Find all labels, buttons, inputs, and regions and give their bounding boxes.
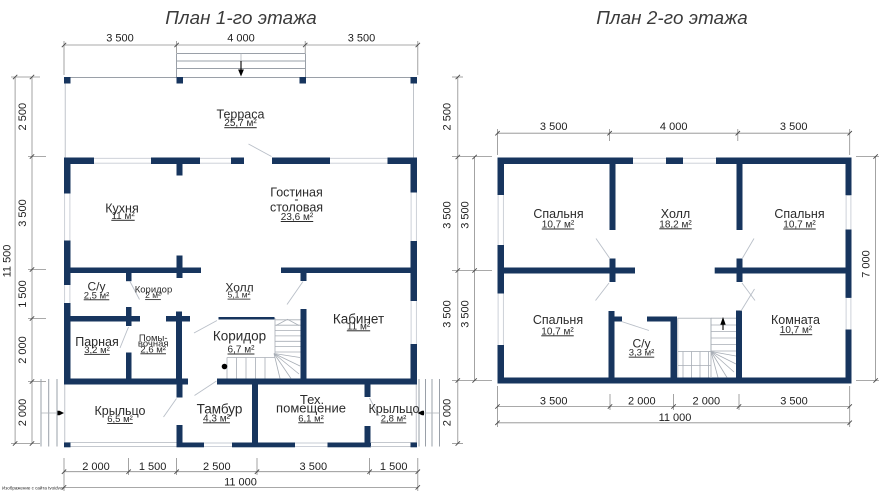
svg-text:2 000: 2 000 [693, 396, 721, 408]
svg-text:2,5 м²: 2,5 м² [84, 290, 110, 301]
svg-text:2 000: 2 000 [82, 461, 110, 473]
svg-text:2 500: 2 500 [17, 103, 29, 131]
svg-text:2 000: 2 000 [442, 399, 454, 427]
svg-text:3,3 м²: 3,3 м² [629, 348, 655, 359]
svg-text:6,5 м²: 6,5 м² [107, 414, 133, 425]
svg-text:11 500: 11 500 [2, 245, 14, 278]
svg-text:3 500: 3 500 [540, 396, 568, 408]
svg-text:2 500: 2 500 [442, 103, 454, 131]
svg-text:18,2 м²: 18,2 м² [659, 219, 692, 230]
svg-text:1 500: 1 500 [380, 461, 408, 473]
svg-text:10,7 м²: 10,7 м² [780, 325, 813, 336]
svg-text:1 500: 1 500 [139, 461, 167, 473]
svg-text:2 м²: 2 м² [145, 290, 161, 300]
svg-text:3 500: 3 500 [300, 461, 328, 473]
svg-text:4,3 м²: 4,3 м² [203, 413, 231, 424]
svg-text:3 500: 3 500 [459, 201, 471, 229]
svg-text:7 000: 7 000 [860, 250, 872, 278]
svg-text:Изображение с сайта tvoidvor: Изображение с сайта tvoidvor [2, 485, 64, 491]
svg-text:Коридор: Коридор [213, 329, 266, 344]
svg-text:2 000: 2 000 [17, 336, 29, 364]
svg-text:Спальня: Спальня [533, 313, 583, 327]
svg-text:2 500: 2 500 [203, 461, 231, 473]
svg-text:2,6 м²: 2,6 м² [140, 344, 166, 355]
svg-text:10,7 м²: 10,7 м² [783, 220, 816, 231]
svg-text:23,6 м²: 23,6 м² [281, 212, 314, 223]
svg-text:3 500: 3 500 [348, 33, 376, 45]
svg-text:6,7 м²: 6,7 м² [228, 345, 256, 356]
svg-text:11 м²: 11 м² [347, 321, 371, 332]
svg-text:4 000: 4 000 [660, 121, 688, 133]
svg-text:11 м²: 11 м² [111, 211, 135, 222]
svg-text:3 500: 3 500 [459, 300, 471, 328]
svg-text:3 500: 3 500 [106, 33, 134, 45]
svg-text:6,1 м²: 6,1 м² [298, 413, 324, 424]
svg-text:4 000: 4 000 [227, 33, 255, 45]
svg-text:2 000: 2 000 [17, 399, 29, 427]
svg-text:План 2-го этажа: План 2-го этажа [596, 7, 748, 28]
svg-text:3 500: 3 500 [442, 201, 454, 229]
svg-text:10,7 м²: 10,7 м² [542, 220, 575, 231]
svg-text:11 000: 11 000 [659, 412, 692, 424]
svg-text:10,7 м²: 10,7 м² [541, 326, 574, 337]
svg-text:План 1-го этажа: План 1-го этажа [165, 7, 317, 28]
svg-text:3 500: 3 500 [17, 199, 29, 227]
svg-text:2,8 м²: 2,8 м² [381, 413, 407, 424]
svg-text:3 500: 3 500 [540, 121, 568, 133]
svg-text:11 000: 11 000 [224, 477, 257, 489]
svg-text:25,7 м²: 25,7 м² [224, 118, 257, 129]
svg-text:5,1 м²: 5,1 м² [228, 290, 251, 300]
svg-text:3 500: 3 500 [780, 396, 808, 408]
svg-text:3 500: 3 500 [442, 300, 454, 328]
svg-text:3 500: 3 500 [780, 121, 808, 133]
svg-text:1 500: 1 500 [17, 280, 29, 308]
svg-text:2 000: 2 000 [628, 396, 656, 408]
svg-text:3,2 м²: 3,2 м² [84, 345, 110, 356]
